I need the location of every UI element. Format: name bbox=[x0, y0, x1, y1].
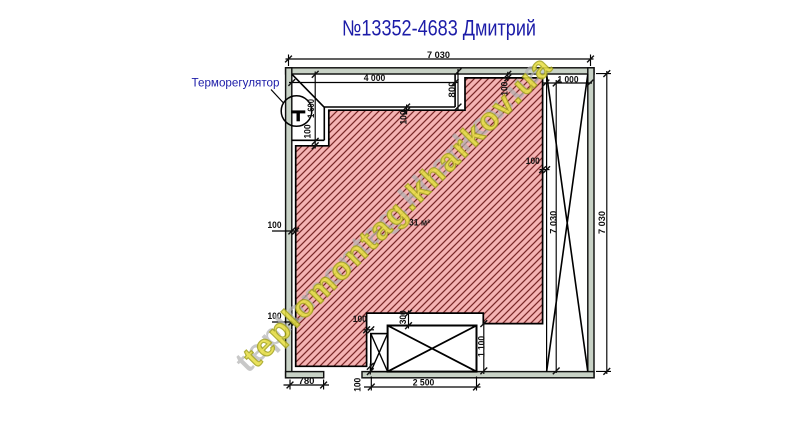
svg-text:300: 300 bbox=[398, 310, 409, 324]
svg-text:1 600: 1 600 bbox=[306, 99, 317, 118]
svg-text:7 030: 7 030 bbox=[549, 211, 560, 234]
svg-text:100: 100 bbox=[398, 111, 409, 125]
svg-text:1 000: 1 000 bbox=[558, 75, 579, 86]
svg-text:100: 100 bbox=[526, 156, 540, 167]
svg-text:780: 780 bbox=[299, 376, 315, 387]
svg-text:100: 100 bbox=[353, 378, 364, 392]
svg-text:4 000: 4 000 bbox=[364, 73, 386, 84]
svg-text:Терморегулятор: Терморегулятор bbox=[192, 76, 280, 90]
svg-text:№13352-4683 Дмитрий: №13352-4683 Дмитрий bbox=[342, 16, 536, 41]
svg-text:800: 800 bbox=[447, 82, 458, 98]
svg-text:7 030: 7 030 bbox=[427, 50, 450, 61]
svg-text:2 500: 2 500 bbox=[413, 378, 435, 389]
svg-text:100: 100 bbox=[268, 220, 282, 231]
svg-text:7 030: 7 030 bbox=[597, 211, 608, 234]
svg-text:100: 100 bbox=[353, 314, 367, 325]
svg-text:1 100: 1 100 bbox=[476, 336, 487, 357]
svg-text:100: 100 bbox=[302, 125, 313, 139]
